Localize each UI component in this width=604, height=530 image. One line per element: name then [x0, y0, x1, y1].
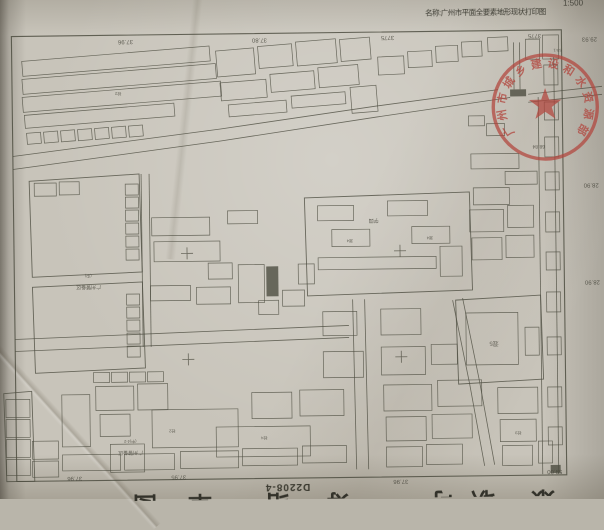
building: [270, 71, 315, 93]
map-annotation: 砼2: [114, 91, 121, 97]
clipped-character: 臮: [531, 485, 555, 503]
building: [111, 126, 126, 138]
map-annotation: 砼2: [168, 429, 175, 435]
building: [216, 48, 256, 77]
building: [381, 309, 421, 335]
building: [318, 256, 436, 269]
building: [498, 387, 538, 413]
building: [502, 445, 532, 465]
building: [386, 416, 426, 440]
building: [547, 292, 561, 312]
stamp-character: 州: [495, 108, 510, 122]
grid-coordinate-label: 37.95: [171, 473, 187, 479]
grid-cross: [182, 353, 194, 365]
building: [147, 372, 163, 382]
scanned-map-photo: 名称:广州市平面全要素地形现状打印图 1:500 (中)广州警备区(中)4-2广…: [0, 0, 604, 499]
building: [125, 197, 138, 208]
building: [127, 320, 140, 331]
building: [471, 153, 519, 169]
grid-coordinate-label: 37.96: [67, 475, 83, 481]
clipped-character: 给: [265, 488, 289, 502]
clipped-character: 职: [471, 486, 495, 503]
building: [152, 217, 210, 236]
map-annotation: 砼4: [260, 435, 267, 441]
building: [111, 372, 127, 382]
map-annotation: (中)4-2: [123, 439, 136, 445]
building: [93, 372, 109, 382]
building: [125, 184, 138, 195]
clipped-character: 可: [431, 486, 455, 503]
clipped-character: 覃: [188, 489, 212, 503]
building: [61, 130, 76, 142]
building: [426, 444, 462, 464]
building: [34, 183, 56, 196]
building: [127, 307, 140, 318]
building: [44, 131, 59, 143]
parcel-boundary: [304, 192, 472, 296]
building: [300, 390, 344, 417]
road-line: [12, 90, 499, 157]
building: [472, 238, 502, 260]
building: [546, 212, 560, 232]
building: [378, 56, 405, 75]
building: [96, 386, 134, 410]
building: [62, 395, 91, 447]
grid-coordinate-label: 28.90: [584, 278, 600, 284]
building: [152, 409, 238, 448]
filled-structure: [266, 266, 278, 296]
building: [339, 37, 371, 61]
building: [126, 210, 139, 221]
road-line: [554, 57, 559, 474]
building: [128, 125, 143, 137]
building: [387, 200, 427, 215]
building: [432, 414, 472, 438]
building: [468, 116, 484, 126]
building: [547, 337, 561, 355]
building: [127, 346, 140, 357]
building: [24, 103, 175, 128]
parcel-boundary: [456, 295, 544, 384]
building: [295, 39, 337, 66]
building: [384, 384, 432, 411]
road-line: [12, 97, 511, 169]
building: [381, 347, 425, 376]
building: [196, 287, 230, 304]
building: [500, 419, 536, 441]
grid-coordinate-label: 3775: [527, 32, 541, 38]
building: [216, 426, 310, 457]
building: [466, 312, 519, 365]
building: [440, 246, 462, 276]
building: [126, 249, 139, 260]
building: [59, 182, 79, 195]
grid-coordinate-label: 29.93: [581, 35, 597, 41]
filled-structure: [510, 89, 526, 96]
building: [228, 211, 258, 224]
building: [78, 129, 93, 141]
building: [473, 187, 509, 204]
building: [538, 441, 552, 463]
building: [6, 399, 30, 417]
map-annotation: (中): [84, 274, 91, 280]
map-sheet: 名称:广州市平面全要素地形现状打印图 1:500 (中)广州警备区(中)4-2广…: [0, 0, 604, 503]
building: [110, 444, 144, 472]
grid-cross: [181, 247, 193, 259]
building: [6, 419, 30, 437]
building: [7, 459, 31, 475]
map-annotation: 混4: [346, 238, 353, 244]
building: [317, 205, 353, 220]
road-line: [365, 299, 369, 469]
building: [126, 236, 139, 247]
parcel-boundary: [32, 282, 145, 373]
building: [506, 235, 534, 257]
building: [323, 351, 363, 377]
grid-coordinate-label: 28.90: [583, 181, 599, 187]
building: [545, 172, 559, 190]
building: [62, 454, 120, 471]
cadastral-map-drawing: (中)广州警备区(中)4-2广州警备区学园混4混4混568.84砼3砼2砼2砼4…: [0, 0, 604, 503]
building: [548, 427, 562, 445]
map-annotation: 学园: [369, 217, 379, 224]
building: [33, 461, 59, 477]
building: [27, 132, 42, 144]
map-annotation: 53-1: [553, 48, 562, 53]
building: [252, 392, 292, 418]
building: [507, 205, 533, 227]
map-annotation: 广州警备区: [76, 283, 101, 290]
grid-coordinate-label: 37.96: [117, 38, 133, 44]
building: [95, 127, 110, 139]
building: [318, 65, 360, 88]
clipped-character: 图: [133, 490, 157, 503]
building: [408, 51, 433, 68]
building: [208, 263, 232, 279]
building: [323, 311, 357, 335]
building: [386, 447, 422, 467]
clipped-character: 筹: [325, 487, 349, 502]
building: [138, 384, 168, 410]
map-annotation: 混5: [489, 340, 499, 348]
grid-cross: [395, 351, 407, 363]
building: [32, 441, 58, 459]
grid-cross: [394, 245, 406, 257]
building: [525, 327, 539, 355]
road-line: [149, 174, 151, 347]
grid-coordinate-label: 3775: [380, 34, 394, 40]
stamp-character: 源: [581, 107, 597, 120]
building: [431, 344, 457, 364]
building: [436, 45, 459, 62]
building: [150, 285, 190, 300]
building: [282, 290, 304, 306]
map-frame: [11, 30, 566, 482]
map-annotation: 混4: [426, 235, 433, 241]
building: [470, 210, 504, 232]
building: [302, 445, 346, 463]
building: [238, 264, 264, 302]
building: [487, 37, 508, 52]
road-line: [538, 97, 543, 474]
building: [220, 79, 267, 101]
road-line: [15, 325, 349, 339]
building: [127, 294, 140, 305]
building: [126, 223, 139, 234]
building: [548, 387, 562, 407]
clipped-text-row: 图覃给筹可职臮: [3, 484, 604, 502]
building: [6, 439, 30, 457]
map-annotation: 广州警备区: [118, 449, 143, 456]
building: [258, 44, 294, 69]
road-line: [353, 299, 357, 469]
road-line: [463, 298, 495, 465]
grid-coordinate-label: 59.00: [547, 468, 563, 474]
building: [180, 451, 238, 469]
building: [546, 252, 560, 270]
building: [291, 92, 346, 108]
building: [461, 41, 482, 57]
building: [545, 137, 559, 157]
map-annotation: 68.84: [532, 143, 545, 149]
stamp-star-icon: [529, 88, 562, 119]
building: [505, 171, 537, 184]
road-line: [15, 337, 349, 351]
building: [228, 100, 287, 117]
building: [129, 372, 145, 382]
grid-coordinate-label: 37.80: [251, 36, 267, 42]
building: [100, 414, 130, 436]
map-annotation: 砼3: [514, 430, 521, 436]
